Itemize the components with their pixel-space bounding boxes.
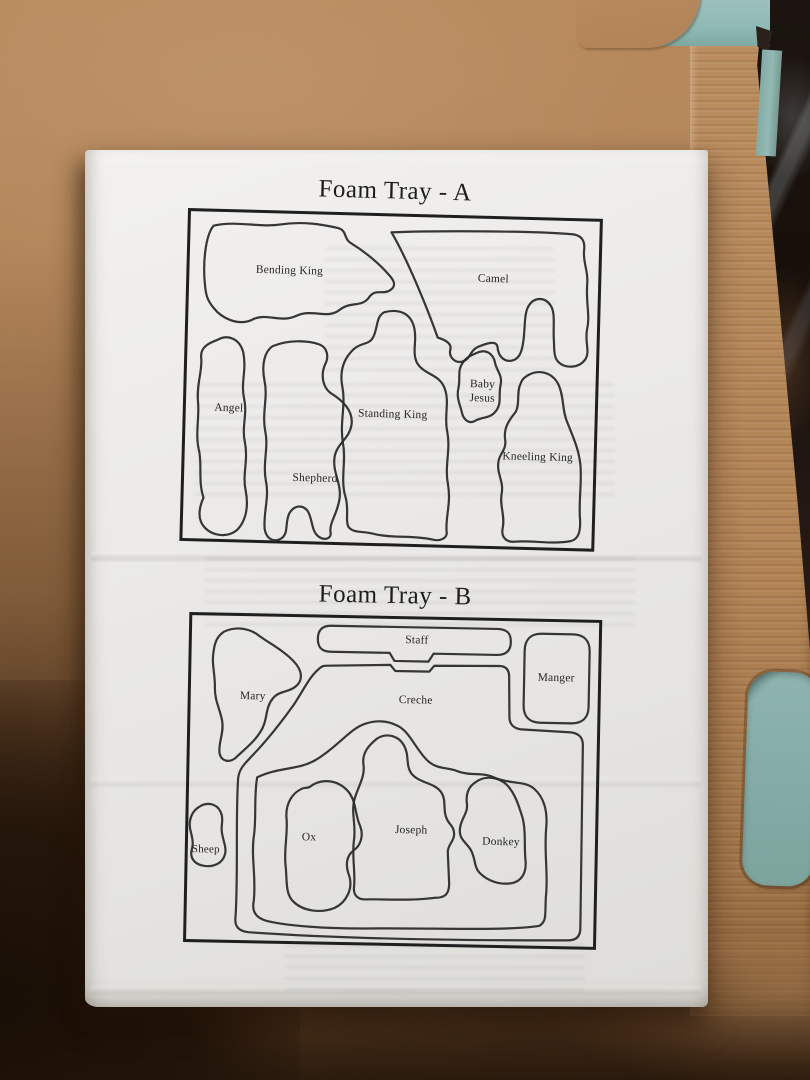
outline-donkey [459, 777, 528, 884]
label-kneeling-king: Kneeling King [502, 450, 573, 464]
outline-ox [284, 780, 363, 911]
label-joseph: Joseph [395, 824, 428, 837]
tray-b-box: Staff Manger Mary Creche Sheep Ox Joseph… [183, 612, 602, 950]
label-baby-jesus: Baby Jesus [459, 377, 506, 407]
outline-sheep [189, 804, 226, 867]
label-shepherd: Shepherd [292, 472, 337, 485]
instruction-sheet: Foam Tray - A Bending King Camel Angel S… [85, 150, 708, 1007]
label-staff: Staff [405, 634, 428, 646]
outline-joseph [351, 735, 456, 901]
photo-scene: { "tray_a": { "title": "Foam Tray - A", … [0, 0, 810, 1080]
label-sheep: Sheep [192, 843, 220, 856]
outline-camel [388, 229, 590, 368]
label-camel: Camel [478, 273, 509, 286]
tray-b-outlines [186, 615, 599, 947]
foam-insert-hand-hole [741, 671, 810, 887]
outline-standing-king [337, 310, 454, 541]
label-creche: Creche [399, 694, 433, 707]
label-mary: Mary [240, 690, 266, 702]
label-donkey: Donkey [482, 836, 520, 849]
label-standing-king: Standing King [358, 408, 428, 422]
label-angel: Angel [214, 402, 243, 415]
label-bending-king: Bending King [256, 264, 324, 278]
outline-shepherd [259, 340, 354, 542]
tray-a-box: Bending King Camel Angel Shepherd Standi… [179, 208, 603, 552]
label-ox: Ox [302, 831, 317, 843]
tray-a-outlines [182, 211, 599, 549]
tray-a-title: Foam Tray - A [187, 172, 603, 211]
outline-angel [194, 337, 251, 536]
label-manger: Manger [538, 672, 575, 685]
tray-a-section: Foam Tray - A Bending King Camel Angel S… [187, 172, 603, 211]
